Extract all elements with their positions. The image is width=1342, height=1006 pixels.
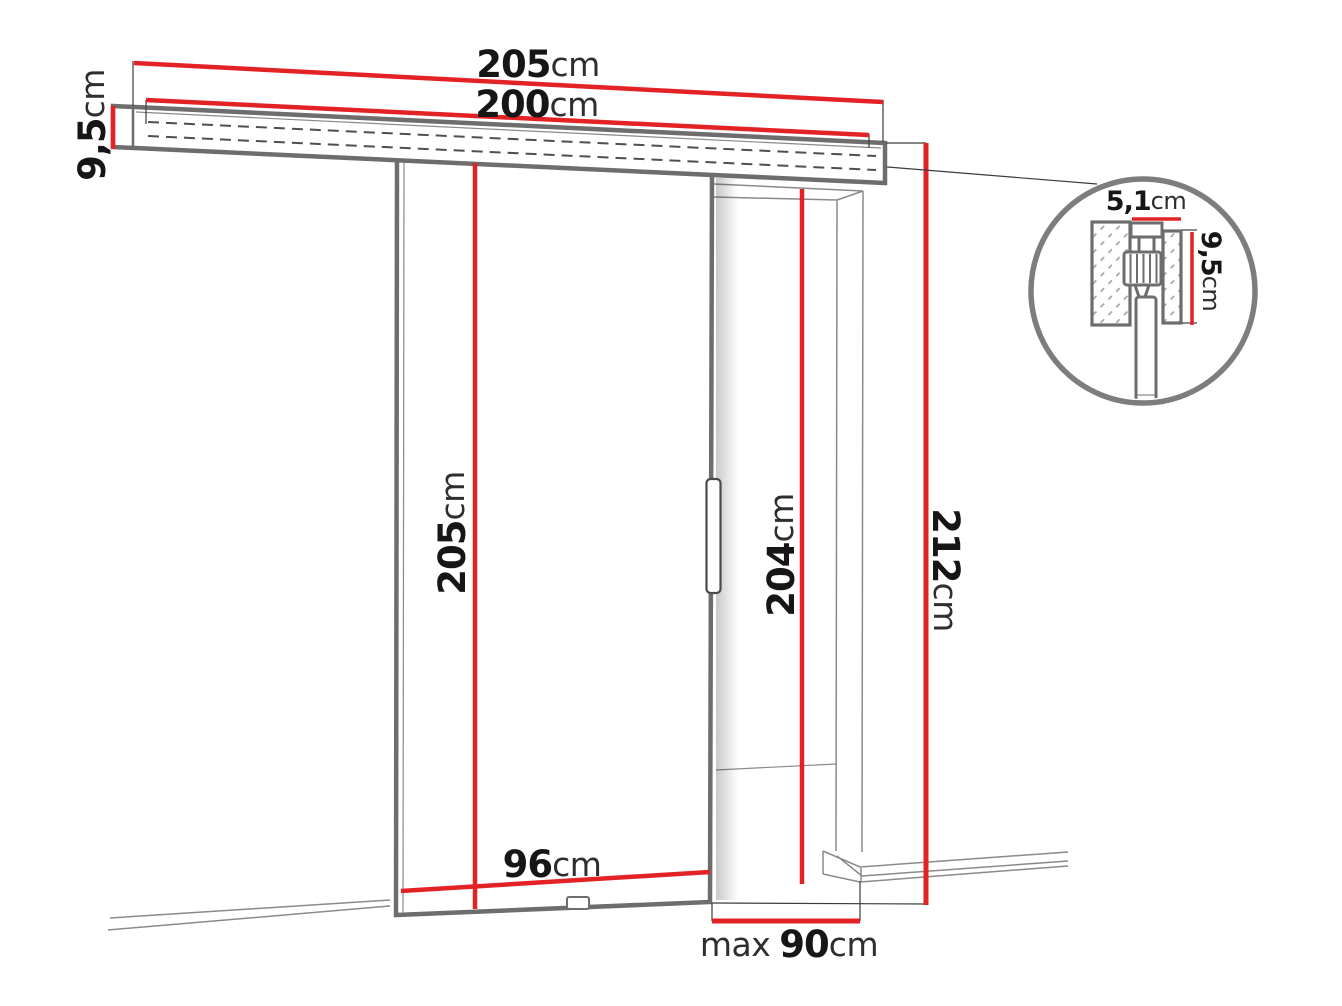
label-detail-track-width: 5,1cm xyxy=(1106,186,1186,217)
label-door-height: 205cm xyxy=(431,471,474,595)
left-baseboard xyxy=(108,900,390,930)
detail-hanger-cone xyxy=(1135,285,1149,297)
doorway-outer-jamb-line xyxy=(862,191,863,852)
detail-connector-line xyxy=(887,167,1097,184)
label-rail-length: 200cm xyxy=(475,83,599,126)
doorway-header-corner-line xyxy=(837,191,863,200)
ext-total-height-bottom xyxy=(712,903,926,904)
label-track-height: 9,5cm xyxy=(71,69,114,181)
door-handle xyxy=(707,479,721,593)
label-total-height: 212cm xyxy=(925,508,968,632)
label-track-length: 205cm xyxy=(476,43,600,86)
detail-door-hanger xyxy=(1136,297,1156,401)
label-max-opening-width: max90cm xyxy=(700,923,878,966)
detail-roller-bracket xyxy=(1131,223,1162,237)
sill-top-edge xyxy=(823,851,1068,867)
label-opening-height: 204cm xyxy=(760,493,803,617)
label-door-width: 96cm xyxy=(503,843,602,886)
diagram-canvas: 205cm 200cm 9,5cm 205cm 204cm 212cm 96cm… xyxy=(0,0,1342,1006)
detail-cover-block xyxy=(1163,231,1181,323)
sliding-door-diagram: 205cm 200cm 9,5cm 205cm 204cm 212cm 96cm… xyxy=(0,0,1342,1006)
doorway-inner-jamb-line xyxy=(836,200,837,851)
label-detail-track-height: 9,5cm xyxy=(1196,231,1227,311)
door-floor-guide xyxy=(567,897,589,909)
detail-roller xyxy=(1124,252,1161,285)
